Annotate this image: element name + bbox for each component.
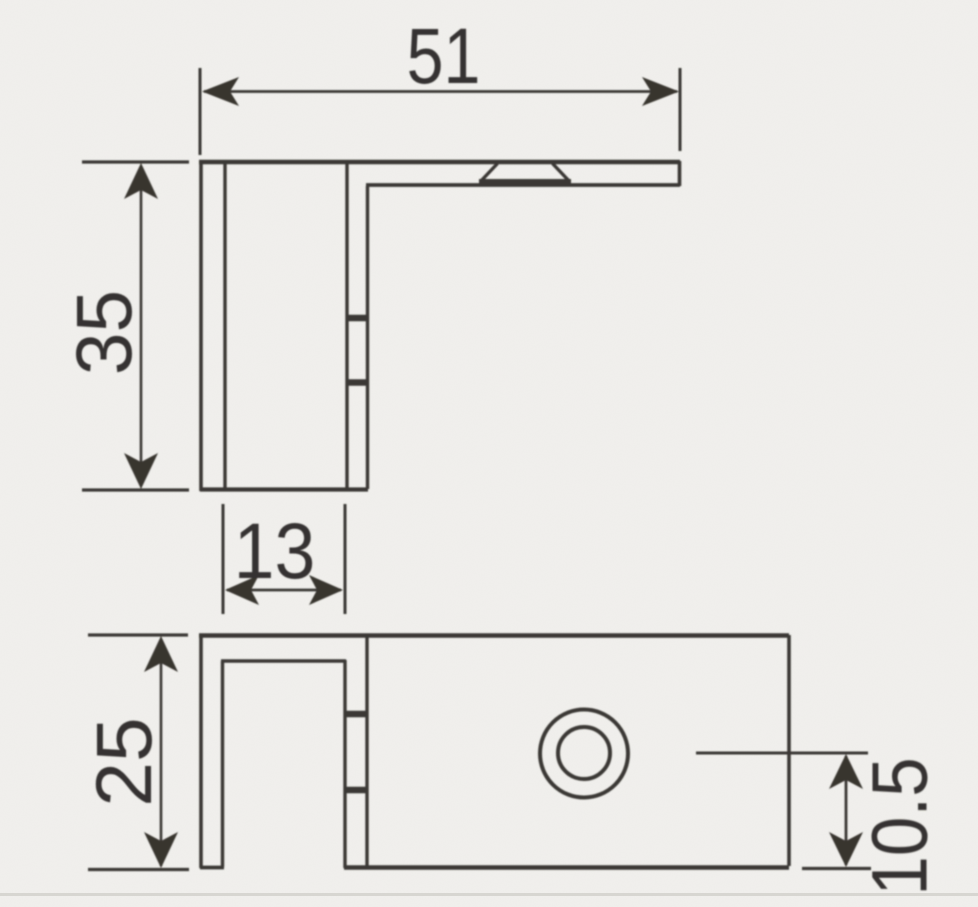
svg-text:25: 25 xyxy=(80,717,168,807)
svg-text:13: 13 xyxy=(234,508,316,596)
svg-text:10.5: 10.5 xyxy=(855,757,943,895)
svg-text:35: 35 xyxy=(61,290,148,375)
svg-text:51: 51 xyxy=(407,13,481,101)
